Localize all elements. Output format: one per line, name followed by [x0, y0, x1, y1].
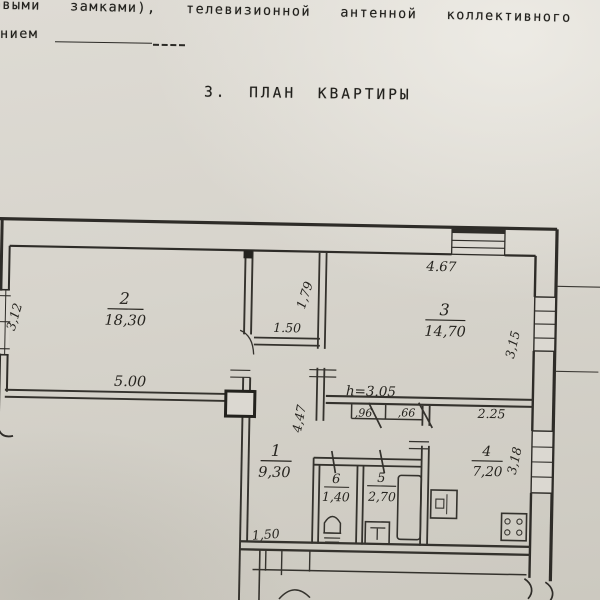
dim-ceiling-height: h=3.05: [346, 383, 396, 400]
room-2-area: 18,30: [104, 313, 146, 330]
dim-hall-length: 4,47: [289, 403, 309, 434]
room-5-number: 5: [377, 471, 386, 486]
door-kitchen: [409, 442, 429, 449]
room-5-area: 2,70: [367, 489, 396, 505]
dim-kitchen-width: 2.25: [476, 406, 505, 422]
wall-break-lines: [524, 579, 553, 600]
window-top-wall: [452, 229, 505, 255]
room-3-area: 14,70: [424, 324, 466, 341]
room-1-area: 9,30: [258, 465, 291, 482]
scanned-document-page: кодовыми замками), телевизионной антенно…: [0, 0, 600, 600]
dim-room3-depth: 3,15: [502, 329, 523, 360]
room-4-number: 4: [481, 444, 491, 460]
floor-plan-drawing: 2 18,30 1 9,30 3 14,70 6 1,40 5 2,70 4 7…: [0, 0, 600, 600]
room-1-number: 1: [271, 441, 282, 460]
washbasin-symbol: [365, 522, 389, 544]
room-6-number: 6: [332, 472, 341, 487]
dim-hall-width: 1,50: [251, 526, 280, 543]
toilet-symbol: [323, 516, 341, 542]
dim-closet-small-2: ,66: [398, 406, 416, 419]
bathtub-symbol: [397, 475, 421, 539]
stove-symbol: [501, 513, 527, 540]
room-3-number: 3: [439, 300, 450, 319]
wall-marker-tick: [243, 250, 252, 258]
dim-closet-depth: 1,79: [293, 280, 316, 311]
dim-kitchen-depth: 3,18: [504, 445, 525, 476]
dim-closet-width: 1.50: [273, 320, 301, 336]
dimension-extension-lines: [555, 286, 600, 372]
vent-shaft-symbol: [225, 391, 254, 417]
interior-walls: [1, 247, 536, 600]
window-kitchen-right-wall: [531, 431, 553, 493]
dim-room3-width: 4.67: [425, 259, 457, 276]
dim-room2-width: 5.00: [114, 374, 147, 391]
dim-closet-small-1: ,96: [355, 406, 373, 419]
room-6-area: 1,40: [322, 489, 350, 505]
room-4-area: 7,20: [472, 464, 503, 481]
entrance-door: [259, 550, 311, 600]
door-room3: [309, 370, 336, 378]
room-2-number: 2: [118, 289, 130, 308]
door-room2: [230, 330, 254, 377]
window-room3-right-wall: [534, 297, 556, 351]
kitchen-sink-symbol: [431, 490, 458, 518]
